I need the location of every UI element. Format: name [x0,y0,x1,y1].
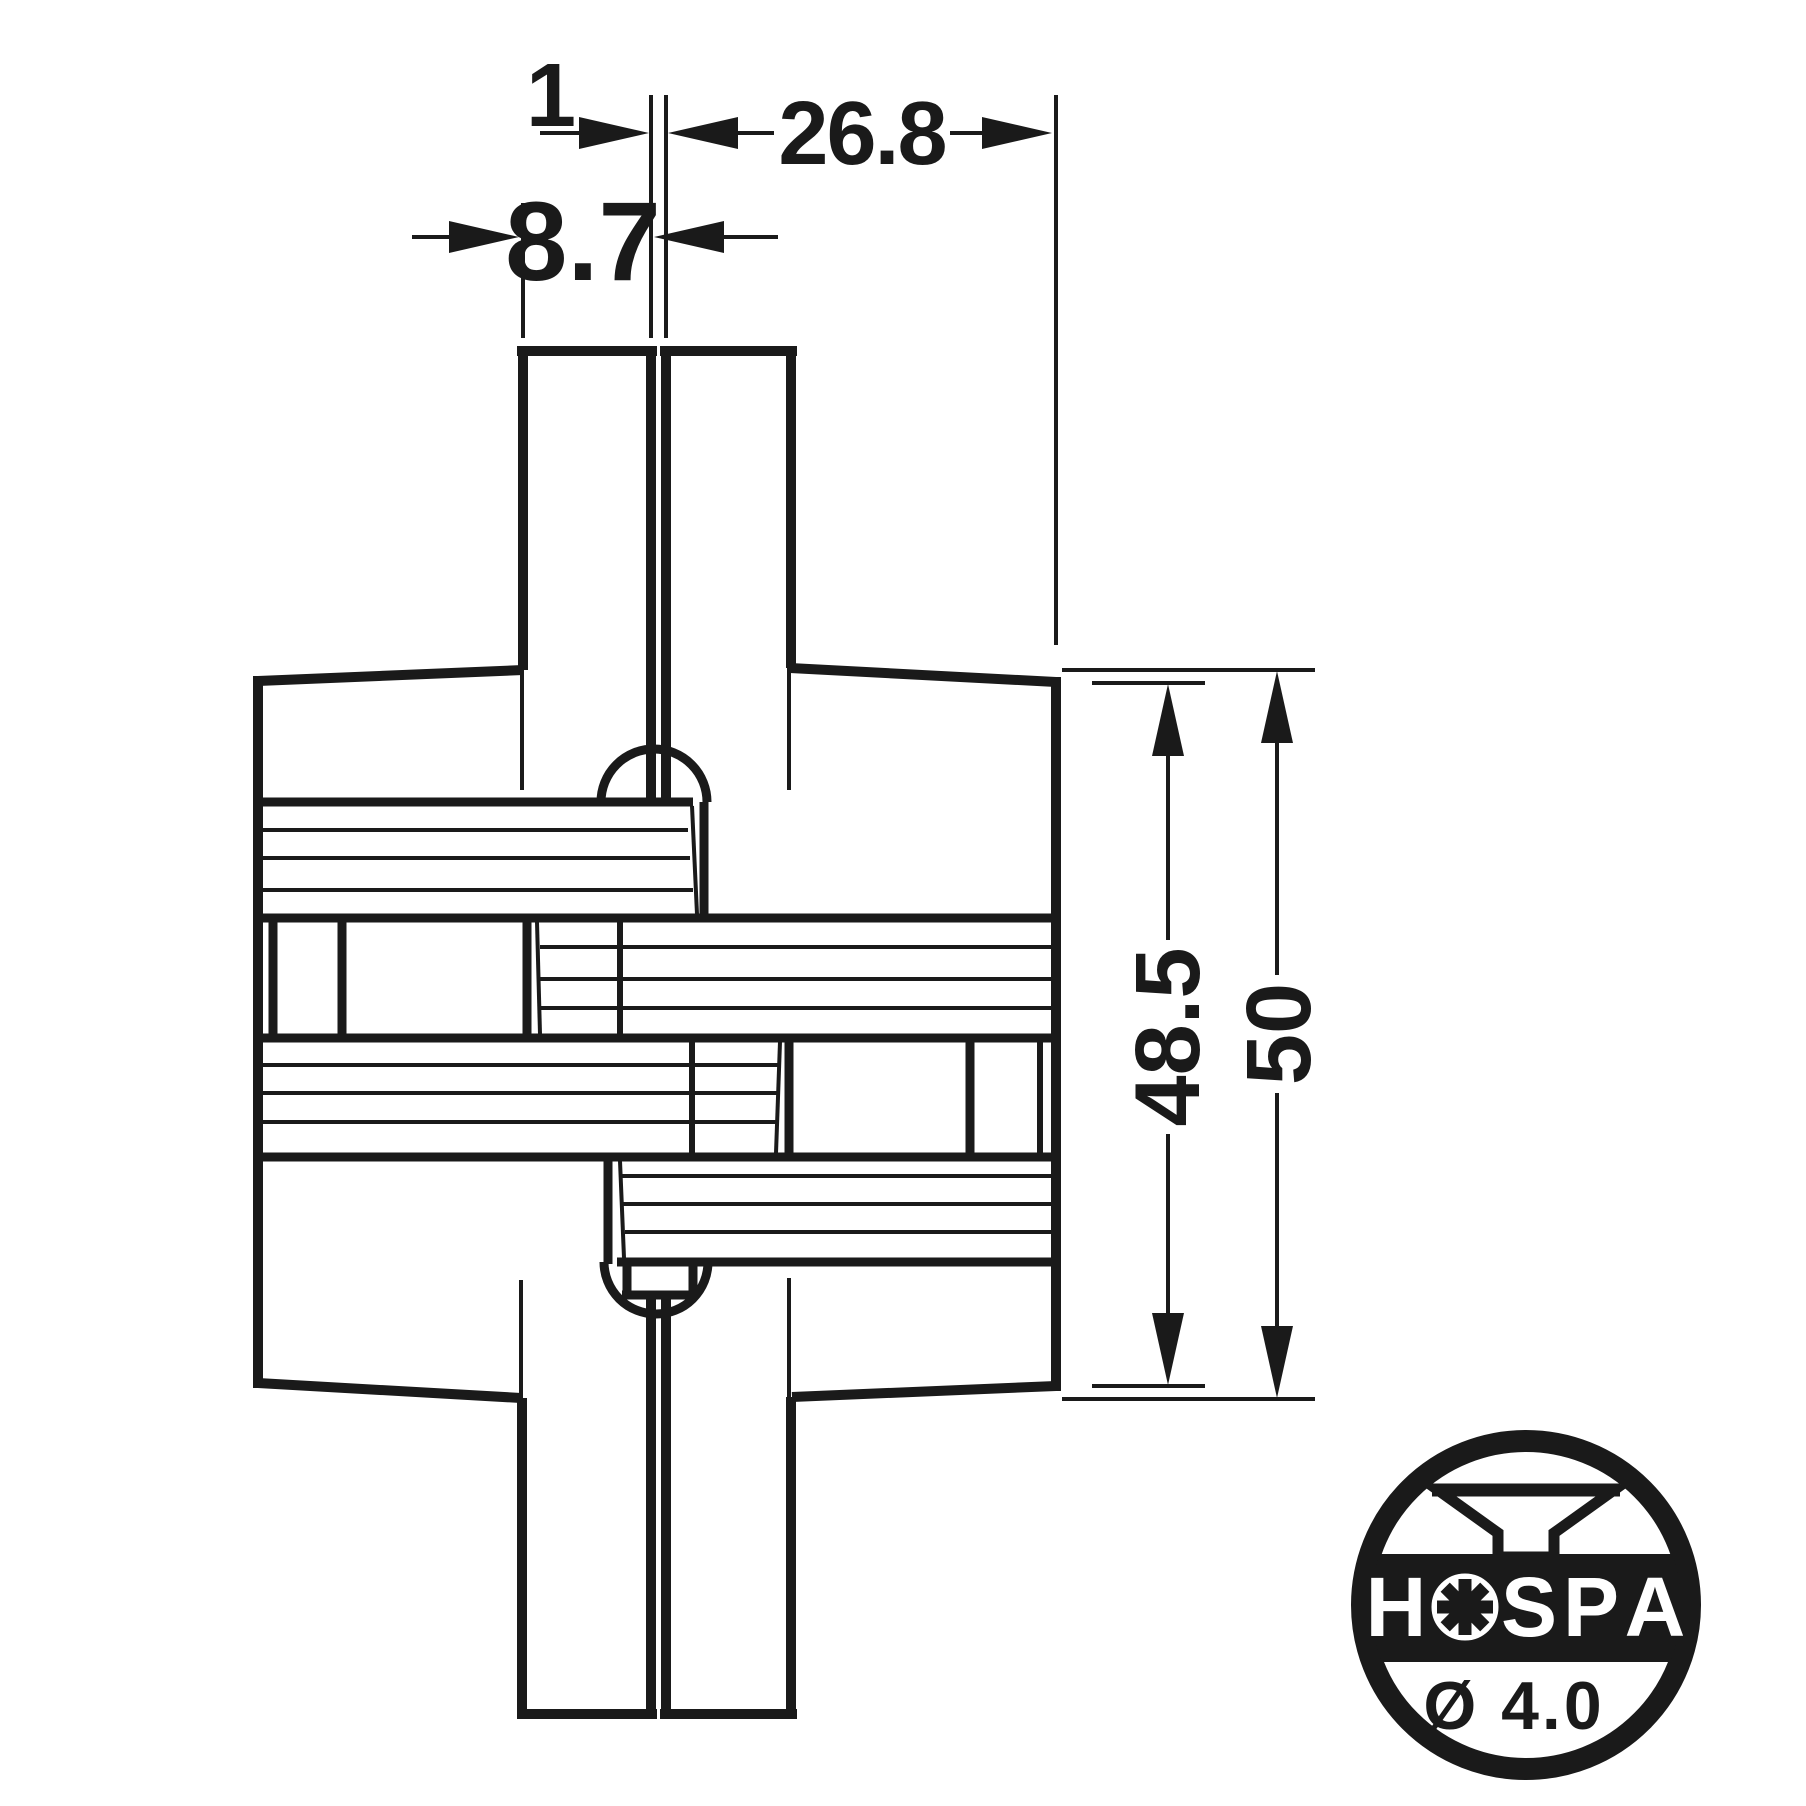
fitting-outline [258,668,1056,1398]
dimension-fitting-width: 26.8 [668,84,1052,184]
logo-letter-p: P [1563,1560,1619,1654]
arrowhead-right-icon [982,117,1052,149]
dimension-overall-height-value: 50 [1228,983,1330,1085]
top-left-shoulder [258,670,523,681]
arrowhead-down-icon [1152,1313,1184,1385]
flange-ribs [262,830,1051,1232]
band-boundaries [258,802,1056,1262]
dimension-panel-thickness: 8.7 [412,179,778,304]
top-panels [517,346,797,670]
dimension-gap-1mm: 1 [526,46,649,149]
technical-drawing-page: 1 26.8 8.7 48.5 50 [0,0,1806,1806]
dimension-body-height: 48.5 [1092,683,1219,1386]
arrowhead-down-icon [1261,1326,1293,1398]
dimension-body-height-value: 48.5 [1117,947,1219,1126]
hospa-logo-badge: H S P A Ø 4.0 [1350,1441,1702,1769]
panel-gap-edges [651,346,666,1719]
logo-letter-h: H [1366,1560,1427,1654]
dimension-fitting-width-value: 26.8 [778,84,945,184]
logo-screw-diameter: Ø 4.0 [1423,1668,1604,1744]
top-right-shoulder [790,668,1056,682]
arrowhead-up-icon [1261,671,1293,743]
pozidriv-star-icon [1431,1573,1499,1641]
fitting-cross-section-diagram: 1 26.8 8.7 48.5 50 [0,0,1806,1806]
rib-taper-edges [537,806,780,1258]
bottom-left-shoulder [258,1383,521,1398]
arrowhead-up-icon [1152,684,1184,756]
arrowhead-right-icon [579,117,649,149]
bottom-right-shoulder [792,1386,1056,1397]
logo-letter-a: A [1625,1560,1686,1654]
arrowhead-left-icon [668,117,738,149]
bottom-panels [517,1397,797,1719]
dimension-panel-thickness-value: 8.7 [505,179,661,304]
logo-letter-s: S [1501,1560,1557,1654]
